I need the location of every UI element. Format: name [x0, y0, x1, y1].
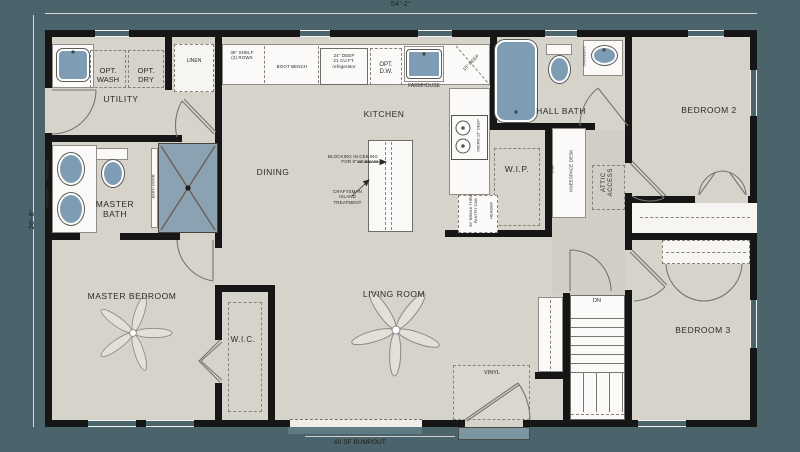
- stairs-down-label: DN: [589, 298, 605, 305]
- wic-label: W.I.C.: [218, 335, 268, 345]
- barn-door-label: BARN DOOR: [152, 156, 157, 216]
- master-bath-label: MASTER BATH: [85, 199, 145, 219]
- bedroom2-label: BEDROOM 2: [669, 105, 749, 115]
- header-label: HEADER: [490, 190, 495, 230]
- door-arc: [177, 240, 213, 281]
- utility-label: UTILITY: [86, 94, 156, 104]
- dining-label: DINING: [243, 167, 303, 177]
- opt-dw-label: OPT.D.W.: [370, 62, 402, 76]
- door-arc: [176, 99, 216, 137]
- micro-label: MICRO 15" DEEP: [477, 113, 482, 157]
- wip-label: W.I.P.: [492, 164, 542, 174]
- door-arc: [630, 161, 666, 201]
- opt-wash-label: OPT.WASH: [90, 66, 126, 84]
- shelf-label: 36" SHELF(2) ROWS: [222, 50, 262, 61]
- burner-icons: [456, 121, 470, 153]
- door-arc: [466, 383, 530, 421]
- opt-dry-label: OPT.DRY: [128, 66, 164, 84]
- drawers-label: DRAWERS: [583, 36, 588, 76]
- bumpout-label: 60 SF BUMPOUT: [285, 439, 435, 447]
- pantry-cab-label: 30" BREAK THRUPANTRY CAB: [469, 183, 479, 239]
- shower-x: [161, 146, 215, 230]
- door-arc: [630, 250, 667, 301]
- kitchen-label: KITCHEN: [354, 109, 414, 119]
- usb-label: USB: [551, 157, 556, 181]
- closet-door-arcs: [666, 264, 742, 301]
- ceiling-fan-icon: [99, 294, 172, 371]
- island-annotation: CRAFTSMANISLANDTREATMENT: [320, 189, 375, 205]
- door-leaf: [199, 340, 222, 382]
- blocking-annotation: BLOCKING IN CEILINGFOR 8"x8" BEAM: [308, 154, 378, 165]
- kneespace-label: KNEESPACE DESK: [568, 131, 573, 211]
- ceiling-fan-icon: [350, 289, 441, 376]
- drawers-label: DRAWERS: [46, 177, 51, 217]
- vinyl-label: VINYL: [472, 370, 512, 377]
- attic-access-label: ATTICACCESS: [601, 157, 615, 207]
- living-room-label: LIVING ROOM: [344, 289, 444, 299]
- door-arc: [570, 250, 611, 291]
- bedroom3-label: BEDROOM 3: [663, 325, 743, 335]
- master-bedroom-label: MASTER BEDROOM: [72, 291, 192, 301]
- linen-label: LINEN: [174, 58, 214, 64]
- hall-bath-label: HALL BATH: [521, 106, 601, 116]
- farmhouse-label: FARMHOUSE: [399, 83, 449, 89]
- refrigerator-label: 24" DEEP21 CU.FT.refrigerator: [320, 53, 368, 69]
- closet-door-arcs: [699, 171, 746, 195]
- floor-plan: 54'-2" 26'-8": [0, 0, 800, 452]
- boot-bench-label: BOOT BENCH: [262, 64, 322, 69]
- bumpout-dim-line: [305, 436, 455, 437]
